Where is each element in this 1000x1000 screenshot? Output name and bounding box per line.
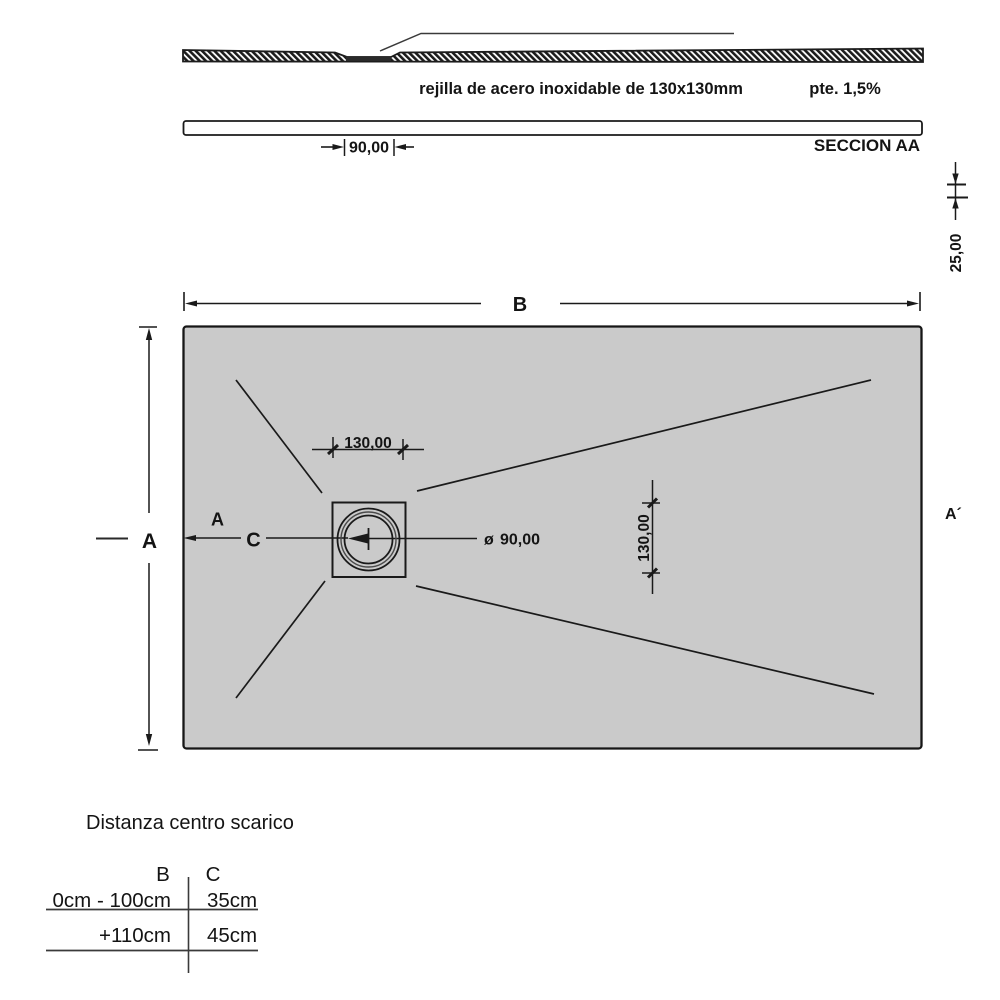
svg-text:A: A (211, 510, 224, 530)
svg-text:90,00: 90,00 (349, 140, 389, 157)
svg-text:+110cm: +110cm (99, 924, 171, 947)
svg-text:A´: A´ (945, 506, 962, 523)
svg-text:C: C (246, 530, 260, 552)
svg-text:pte. 1,5%: pte. 1,5% (809, 80, 881, 98)
svg-text:C: C (206, 863, 221, 886)
svg-text:45cm: 45cm (207, 924, 257, 947)
svg-text:130,00: 130,00 (344, 435, 391, 452)
svg-text:Distanza centro scarico: Distanza centro scarico (86, 812, 294, 834)
svg-text:A: A (142, 530, 157, 553)
svg-text:B: B (513, 294, 527, 316)
svg-text:35cm: 35cm (207, 889, 257, 912)
svg-text:130,00: 130,00 (636, 514, 653, 561)
svg-text:90,00: 90,00 (500, 532, 540, 549)
svg-text:0cm - 100cm: 0cm - 100cm (53, 889, 171, 912)
svg-text:rejilla de acero inoxidable de: rejilla de acero inoxidable de 130x130mm (419, 80, 743, 98)
svg-text:SECCION AA: SECCION AA (814, 136, 920, 155)
svg-text:B: B (156, 863, 170, 886)
svg-text:ø: ø (484, 532, 494, 549)
svg-text:25,00: 25,00 (948, 234, 965, 273)
